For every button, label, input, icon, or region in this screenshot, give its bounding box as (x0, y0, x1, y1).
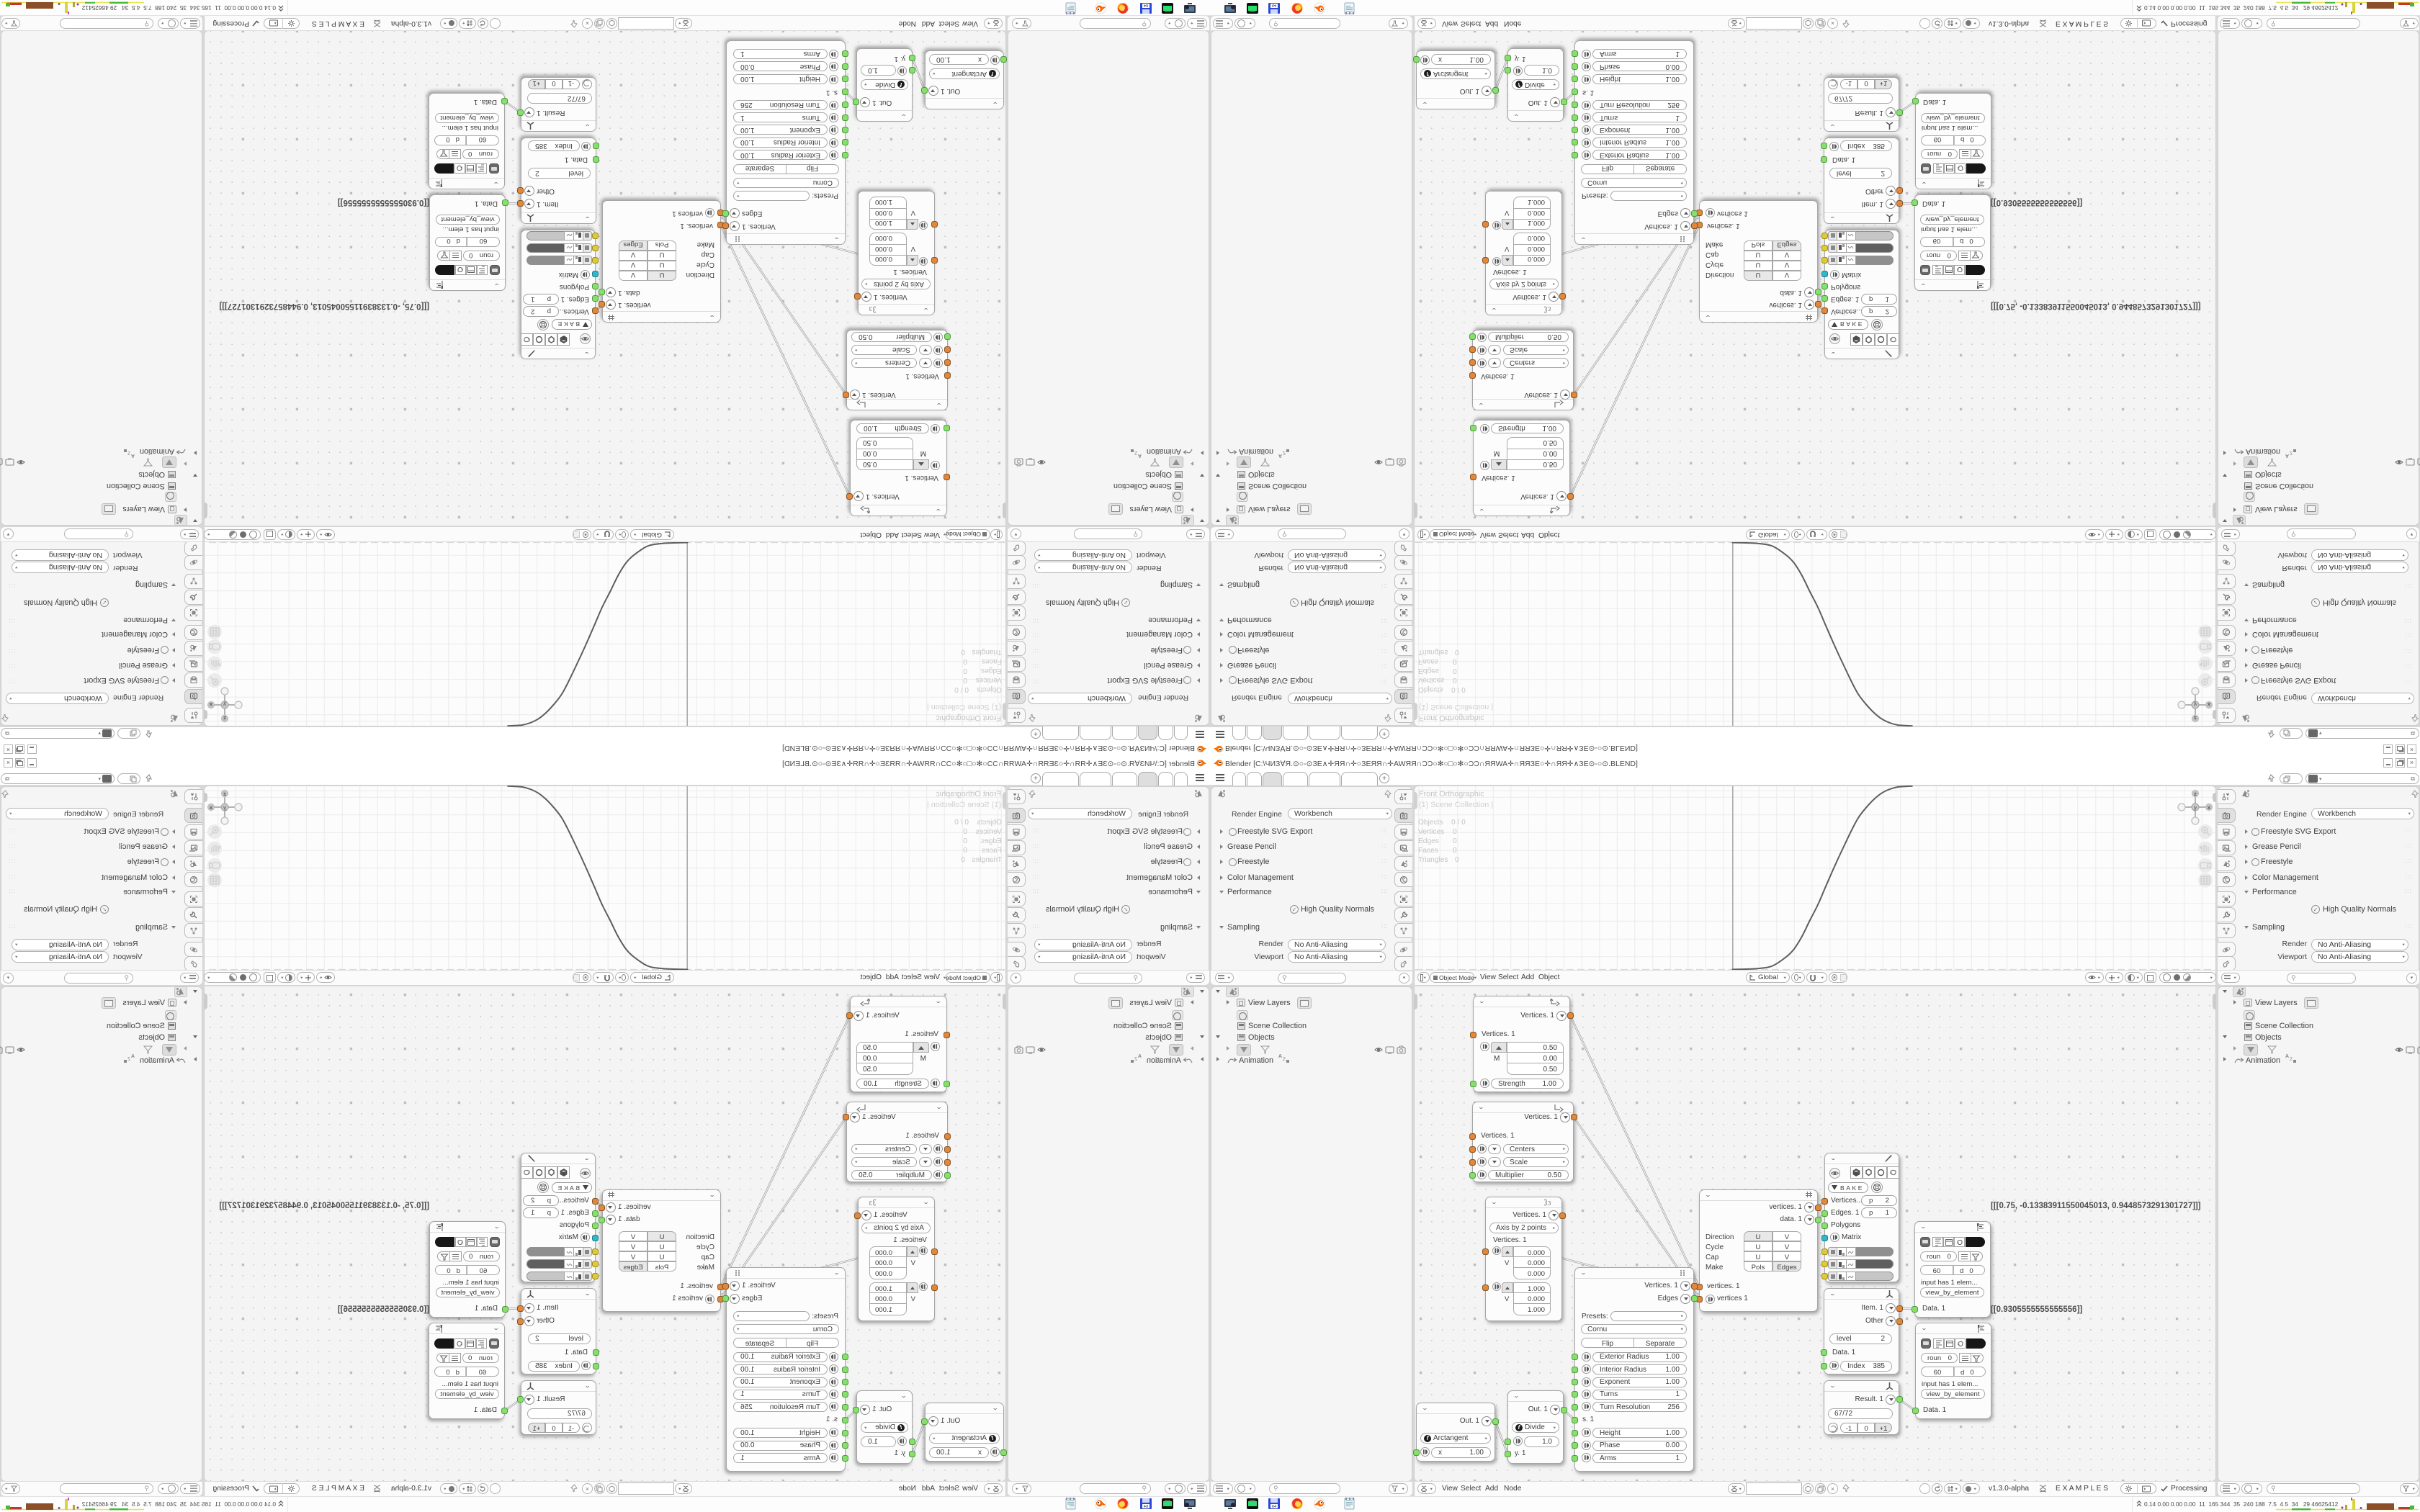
svg-text:z: z (223, 791, 226, 797)
svg-text:64: 64 (1144, 3, 1148, 7)
svg-text:3: 3 (869, 306, 872, 312)
svg-text:64: 64 (1272, 1505, 1276, 1509)
svg-text:x: x (209, 701, 212, 708)
svg-text:64: 64 (1144, 1505, 1148, 1509)
svg-text:3: 3 (1548, 306, 1551, 312)
svg-text:z: z (223, 715, 226, 721)
svg-text:3: 3 (869, 1200, 872, 1206)
svg-text:y: y (223, 701, 226, 708)
svg-text:3: 3 (1548, 1200, 1551, 1206)
svg-text:y: y (223, 804, 226, 811)
svg-text:64: 64 (1272, 3, 1276, 7)
svg-text:z: z (2194, 791, 2197, 797)
svg-text:x: x (209, 804, 212, 811)
svg-text:z: z (2194, 715, 2197, 721)
